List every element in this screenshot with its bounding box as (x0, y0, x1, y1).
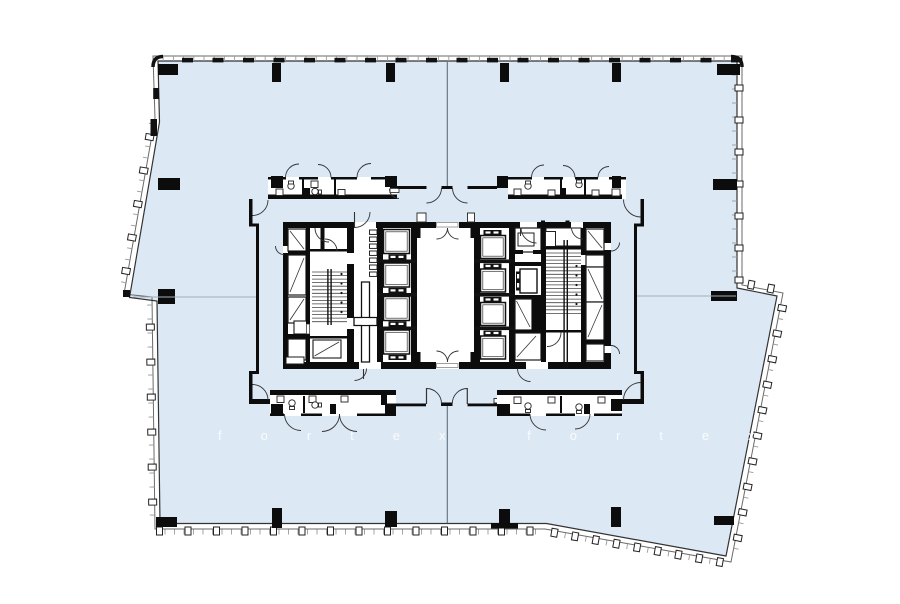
svg-text:fortex fortex f: fortex fortex f (218, 428, 879, 443)
